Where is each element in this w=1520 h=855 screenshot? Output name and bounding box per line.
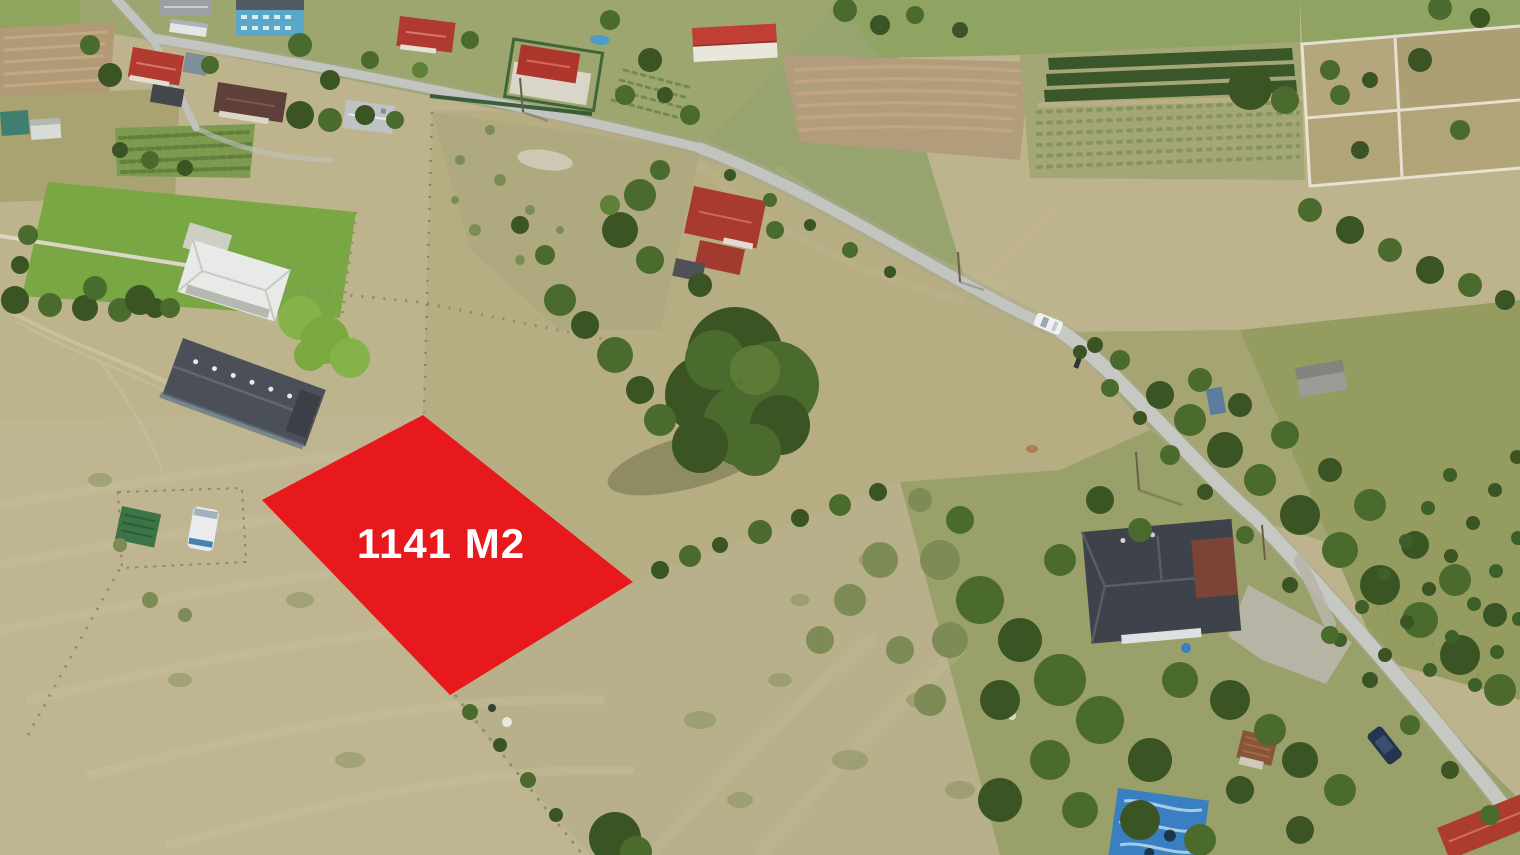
house-partial-top (160, 0, 212, 15)
teal-shed (0, 110, 30, 136)
dark-bin (488, 704, 496, 712)
red-roof-house-c (396, 16, 456, 56)
hay-bale (1026, 445, 1038, 453)
blue-apartment-house (236, 0, 304, 36)
blue-pool-item (1181, 643, 1191, 653)
white-sack (502, 717, 512, 727)
white-shed (30, 118, 61, 140)
bottom-right-house (1082, 519, 1241, 647)
aerial-photo: 1141 M2 (0, 0, 1520, 855)
red-gable-building-e (692, 24, 778, 62)
parcel-area-label: 1141 M2 (357, 520, 525, 567)
aerial-photo-canvas: 1141 M2 (0, 0, 1520, 855)
